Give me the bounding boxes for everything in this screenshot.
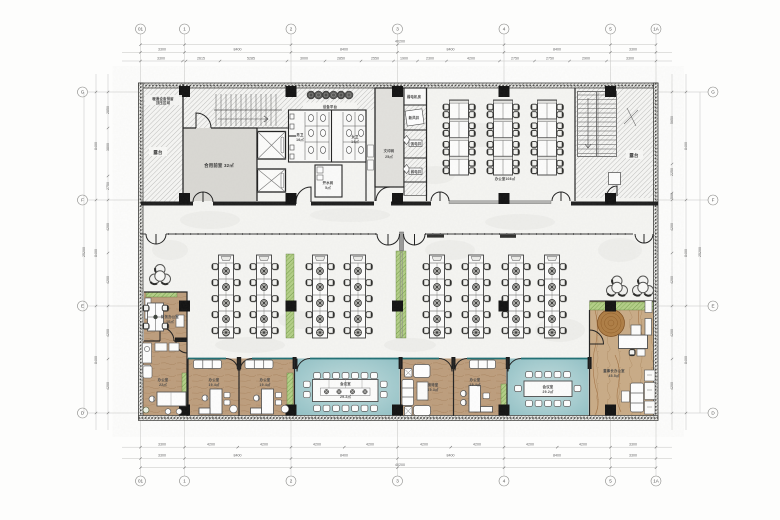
svg-text:3: 3 — [396, 27, 399, 32]
svg-text:4200: 4200 — [526, 442, 534, 446]
svg-text:3300: 3300 — [629, 47, 637, 51]
svg-text:1: 1 — [183, 27, 186, 32]
svg-text:4200: 4200 — [670, 382, 674, 390]
svg-text:2300: 2300 — [426, 57, 434, 61]
svg-text:01: 01 — [138, 27, 144, 32]
svg-text:E: E — [711, 304, 714, 309]
svg-text:4200: 4200 — [313, 442, 321, 446]
svg-text:4200: 4200 — [260, 442, 268, 446]
svg-text:2: 2 — [290, 27, 293, 32]
svg-text:8400: 8400 — [234, 47, 242, 51]
svg-text:3: 3 — [396, 479, 399, 484]
svg-text:2750: 2750 — [511, 57, 519, 61]
svg-text:8400: 8400 — [553, 47, 561, 51]
svg-text:4200: 4200 — [473, 442, 481, 446]
svg-text:F: F — [81, 198, 84, 203]
svg-text:4200: 4200 — [670, 276, 674, 284]
svg-text:3300: 3300 — [158, 47, 166, 51]
svg-text:1: 1 — [183, 479, 186, 484]
svg-text:25200: 25200 — [698, 247, 702, 257]
svg-text:4200: 4200 — [670, 223, 674, 231]
svg-text:01: 01 — [138, 479, 144, 484]
svg-text:8400: 8400 — [447, 454, 455, 458]
svg-text:8400: 8400 — [447, 47, 455, 51]
svg-text:3300: 3300 — [629, 454, 637, 458]
svg-text:F: F — [712, 198, 715, 203]
svg-text:3300: 3300 — [629, 442, 637, 446]
svg-text:G: G — [81, 90, 85, 95]
svg-text:40200: 40200 — [395, 40, 405, 44]
svg-text:8400: 8400 — [340, 47, 348, 51]
svg-text:3800: 3800 — [106, 143, 110, 151]
svg-text:2750: 2750 — [106, 182, 110, 190]
svg-text:2: 2 — [290, 479, 293, 484]
svg-text:4200: 4200 — [467, 57, 475, 61]
svg-text:4200: 4200 — [420, 442, 428, 446]
svg-text:8400: 8400 — [94, 249, 98, 257]
svg-text:4200: 4200 — [207, 442, 215, 446]
svg-text:5: 5 — [609, 479, 612, 484]
svg-text:1900: 1900 — [400, 57, 408, 61]
svg-text:500: 500 — [670, 193, 674, 199]
svg-text:E: E — [81, 304, 84, 309]
svg-text:8400: 8400 — [340, 454, 348, 458]
svg-text:8400: 8400 — [684, 356, 688, 364]
svg-text:2750: 2750 — [546, 57, 554, 61]
svg-text:4200: 4200 — [366, 442, 374, 446]
svg-text:4200: 4200 — [670, 329, 674, 337]
svg-text:8400: 8400 — [684, 142, 688, 150]
svg-text:3300: 3300 — [158, 442, 166, 446]
svg-text:5285: 5285 — [247, 57, 255, 61]
svg-text:3300: 3300 — [157, 57, 165, 61]
svg-text:2250: 2250 — [670, 168, 674, 176]
svg-text:4: 4 — [503, 27, 506, 32]
svg-text:3300: 3300 — [626, 57, 634, 61]
svg-text:5650: 5650 — [670, 116, 674, 124]
svg-text:2550: 2550 — [371, 57, 379, 61]
svg-text:4200: 4200 — [106, 223, 110, 231]
svg-text:3300: 3300 — [158, 454, 166, 458]
svg-text:4200: 4200 — [579, 442, 587, 446]
svg-text:4200: 4200 — [106, 329, 110, 337]
svg-text:8400: 8400 — [234, 454, 242, 458]
svg-text:2850: 2850 — [106, 106, 110, 114]
svg-text:2615: 2615 — [197, 57, 205, 61]
svg-text:1A: 1A — [653, 479, 660, 484]
svg-text:8400: 8400 — [94, 142, 98, 150]
svg-text:G: G — [711, 90, 715, 95]
svg-text:40200: 40200 — [395, 463, 405, 467]
svg-text:5: 5 — [609, 27, 612, 32]
svg-text:2850: 2850 — [337, 57, 345, 61]
svg-text:4: 4 — [503, 479, 506, 484]
svg-text:4200: 4200 — [106, 382, 110, 390]
svg-text:3000: 3000 — [300, 57, 308, 61]
svg-text:4200: 4200 — [106, 276, 110, 284]
svg-text:25200: 25200 — [82, 247, 86, 257]
svg-text:2900: 2900 — [582, 57, 590, 61]
svg-text:8400: 8400 — [684, 249, 688, 257]
svg-text:1A: 1A — [653, 27, 660, 32]
svg-text:8400: 8400 — [553, 454, 561, 458]
svg-text:8400: 8400 — [94, 356, 98, 364]
